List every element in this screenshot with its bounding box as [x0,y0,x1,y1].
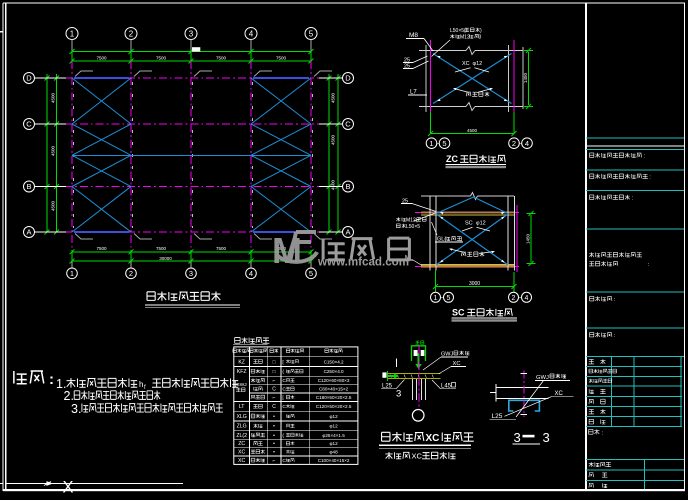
svg-text:7500: 7500 [156,246,167,251]
svg-text:1: 1 [70,29,75,38]
svg-text:B: B [345,182,350,191]
svg-text:4500: 4500 [51,200,56,211]
svg-text:L50×5: L50×5 [406,224,420,230]
svg-text:3.: 3. [71,402,81,416]
svg-text:3: 3 [189,29,194,38]
svg-text:4500: 4500 [467,128,478,133]
svg-text:XC: XC [453,361,461,367]
svg-text:φ12: φ12 [476,221,486,227]
svg-text:3: 3 [543,430,550,445]
svg-text:GL(: GL( [437,237,446,243]
svg-text:SC: SC [465,221,473,227]
svg-text:C80×40×15×2: C80×40×15×2 [319,387,349,392]
svg-text:XC: XC [462,61,470,67]
svg-text:C120×60×80×3: C120×60×80×3 [318,378,350,383]
svg-text:4500: 4500 [331,92,336,103]
svg-text:KZ: KZ [238,359,245,365]
svg-text:www.mfcad.com: www.mfcad.com [317,256,409,269]
svg-text:C100×40×15×2: C100×40×15×2 [318,458,350,463]
svg-text:30000: 30000 [159,256,172,261]
svg-text:5: 5 [309,29,314,38]
svg-text:4: 4 [249,29,254,38]
svg-text:4500: 4500 [331,179,336,190]
svg-text:4500: 4500 [51,92,56,103]
svg-text:X: X [63,479,74,497]
svg-text:XC: XC [412,452,423,461]
svg-text:B: B [26,182,31,191]
svg-text:•: • [273,450,275,456]
svg-text:LT: LT [239,404,245,410]
svg-text::: : [649,174,651,180]
svg-text:⌐: ⌐ [273,458,276,464]
svg-text:4: 4 [525,139,529,148]
svg-text:φ25×4×1.5: φ25×4×1.5 [322,433,345,438]
svg-text:C: C [272,404,276,410]
svg-text:φ48: φ48 [330,450,339,455]
svg-text:2: 2 [512,295,516,302]
svg-text:3: 3 [396,389,401,400]
svg-text:1: 1 [429,139,433,148]
svg-text:4: 4 [249,269,253,278]
svg-text:4500: 4500 [331,134,336,145]
svg-text:1450: 1450 [526,233,531,244]
svg-text:φ12: φ12 [330,414,339,419]
svg-text:C: C [282,458,286,464]
svg-text:3000: 3000 [469,281,480,287]
svg-text:A: A [26,228,31,237]
svg-text:ZLG: ZLG [237,424,247,430]
svg-text:C: C [26,120,32,129]
svg-text:3: 3 [189,269,193,278]
svg-text:C: C [345,120,351,129]
svg-text:C: C [282,378,286,384]
svg-text:ZC: ZC [238,441,245,447]
svg-text:XC: XC [238,450,245,456]
svg-text:M8: M8 [409,32,418,39]
svg-text:□: □ [273,359,276,365]
svg-text:5: 5 [447,295,451,302]
svg-text:7500: 7500 [276,56,287,61]
svg-text:GWJ: GWJ [536,375,549,381]
svg-text:L50×5(: L50×5( [450,28,466,34]
svg-text:⌐: ⌐ [273,395,276,401]
svg-text:1: 1 [70,269,74,278]
svg-text:): ) [461,237,463,243]
svg-text:φ12: φ12 [330,441,339,446]
svg-text:M: M [272,230,302,271]
svg-text:C150×4.2: C150×4.2 [324,359,344,364]
svg-text::: : [648,262,650,268]
svg-text:D: D [345,74,351,83]
svg-text:C250×4.0: C250×4.0 [324,369,344,374]
svg-text:7500: 7500 [96,56,107,61]
svg-text:C: C [272,387,276,393]
svg-text::: : [643,153,645,159]
svg-text:h: h [139,380,143,389]
svg-text::: : [49,371,54,388]
svg-text:φ12: φ12 [330,424,339,429]
svg-text:C: C [282,404,286,410]
svg-text:•: • [273,414,275,420]
svg-text:□: □ [273,369,276,375]
svg-text:7500: 7500 [96,246,107,251]
svg-text:GWJ: GWJ [441,352,453,358]
svg-text:XC: XC [426,433,440,444]
svg-text:3: 3 [514,430,521,445]
svg-text:7500: 7500 [216,246,227,251]
svg-text:2.: 2. [64,389,74,403]
svg-text:7500: 7500 [216,56,227,61]
svg-text:•: • [273,424,275,430]
svg-text::: : [632,195,634,201]
svg-text:•: • [273,433,275,439]
svg-text:D: D [26,74,32,83]
svg-text::: : [614,333,616,339]
svg-text:XC: XC [238,458,245,464]
svg-text:7500: 7500 [156,56,167,61]
svg-text:XC: XC [555,391,564,397]
svg-text:φ12: φ12 [473,61,483,67]
svg-text:5: 5 [442,139,446,148]
svg-text:M12: M12 [460,35,470,41]
svg-text:SC: SC [452,308,465,318]
svg-text:5: 5 [309,269,313,278]
svg-text:ZL(2: ZL(2 [236,433,247,439]
svg-text:•: • [273,441,275,447]
svg-text:2: 2 [129,29,134,38]
svg-text:A: A [345,228,350,237]
svg-text:1450: 1450 [523,72,528,83]
svg-text:C120×50×20×2.5: C120×50×20×2.5 [316,404,352,409]
svg-text:1: 1 [434,295,438,302]
svg-text:4500: 4500 [51,145,56,156]
svg-text::: : [614,297,616,303]
svg-text:C: C [282,387,286,393]
svg-text:KFZ: KFZ [237,369,247,375]
svg-text:2: 2 [512,139,516,148]
svg-text:C180×50×20×2.5: C180×50×20×2.5 [316,395,352,400]
svg-text:4: 4 [525,295,529,302]
svg-text:⌐: ⌐ [273,378,276,384]
svg-text:XLG: XLG [236,414,246,420]
svg-text:3: 3 [479,35,482,41]
svg-text:2: 2 [129,269,133,278]
svg-text:ZC: ZC [446,154,458,164]
